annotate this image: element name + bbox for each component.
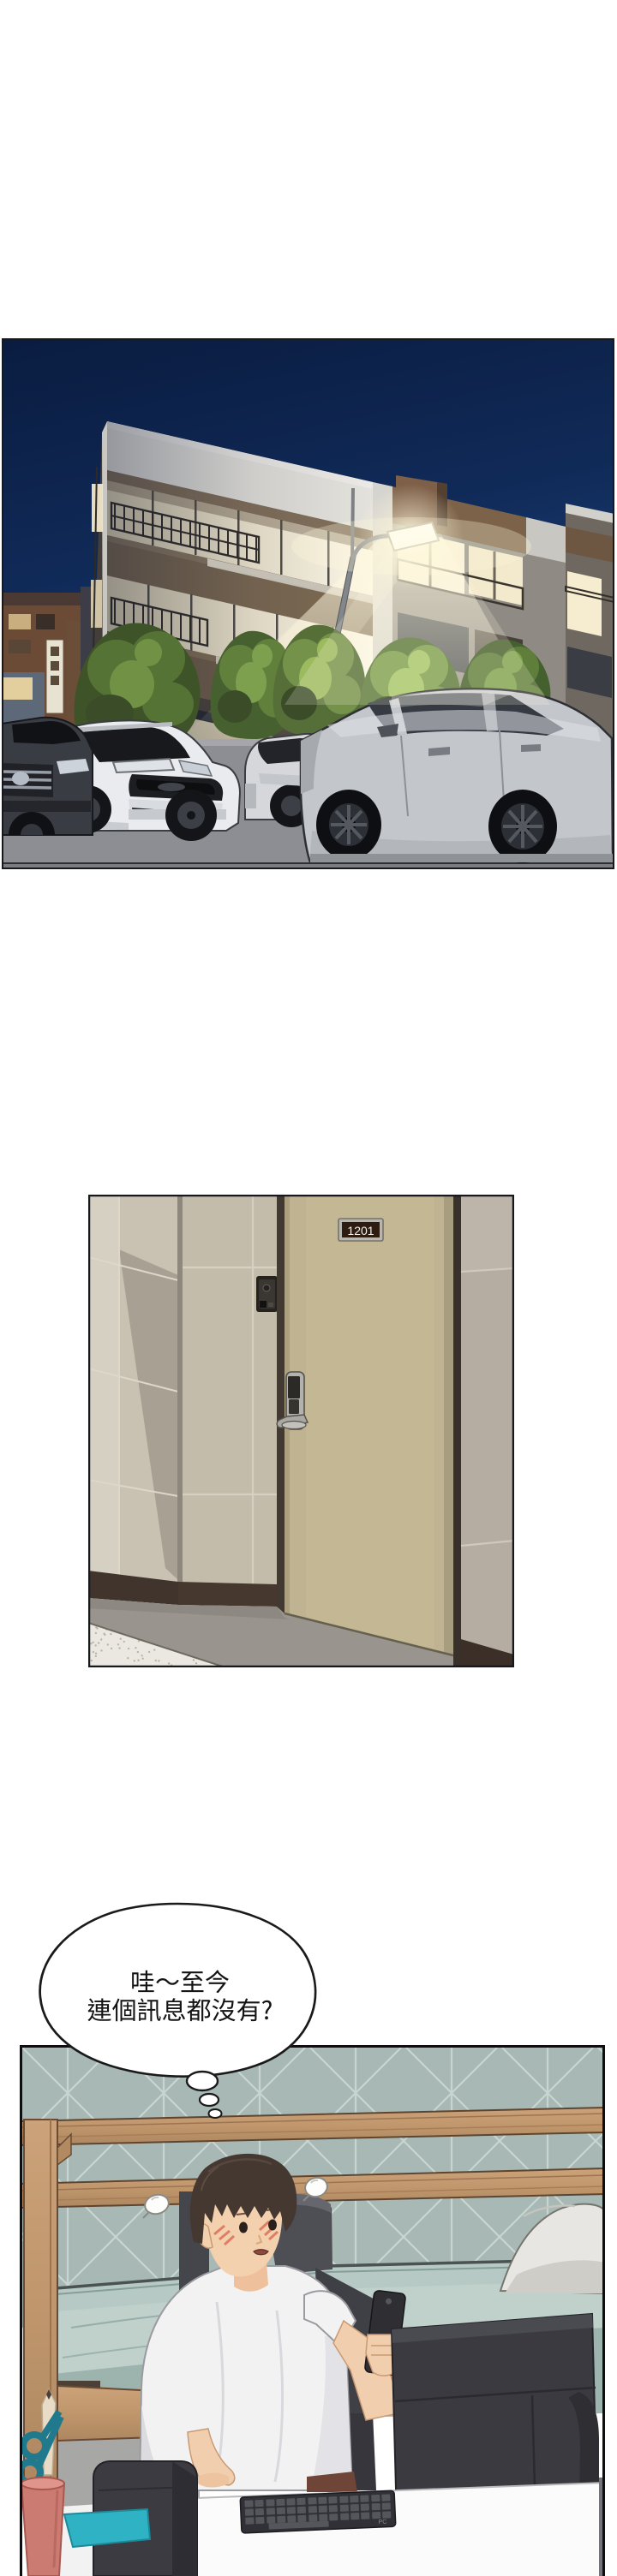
- svg-text:1201: 1201: [347, 1224, 374, 1237]
- svg-text:PC: PC: [378, 2519, 386, 2525]
